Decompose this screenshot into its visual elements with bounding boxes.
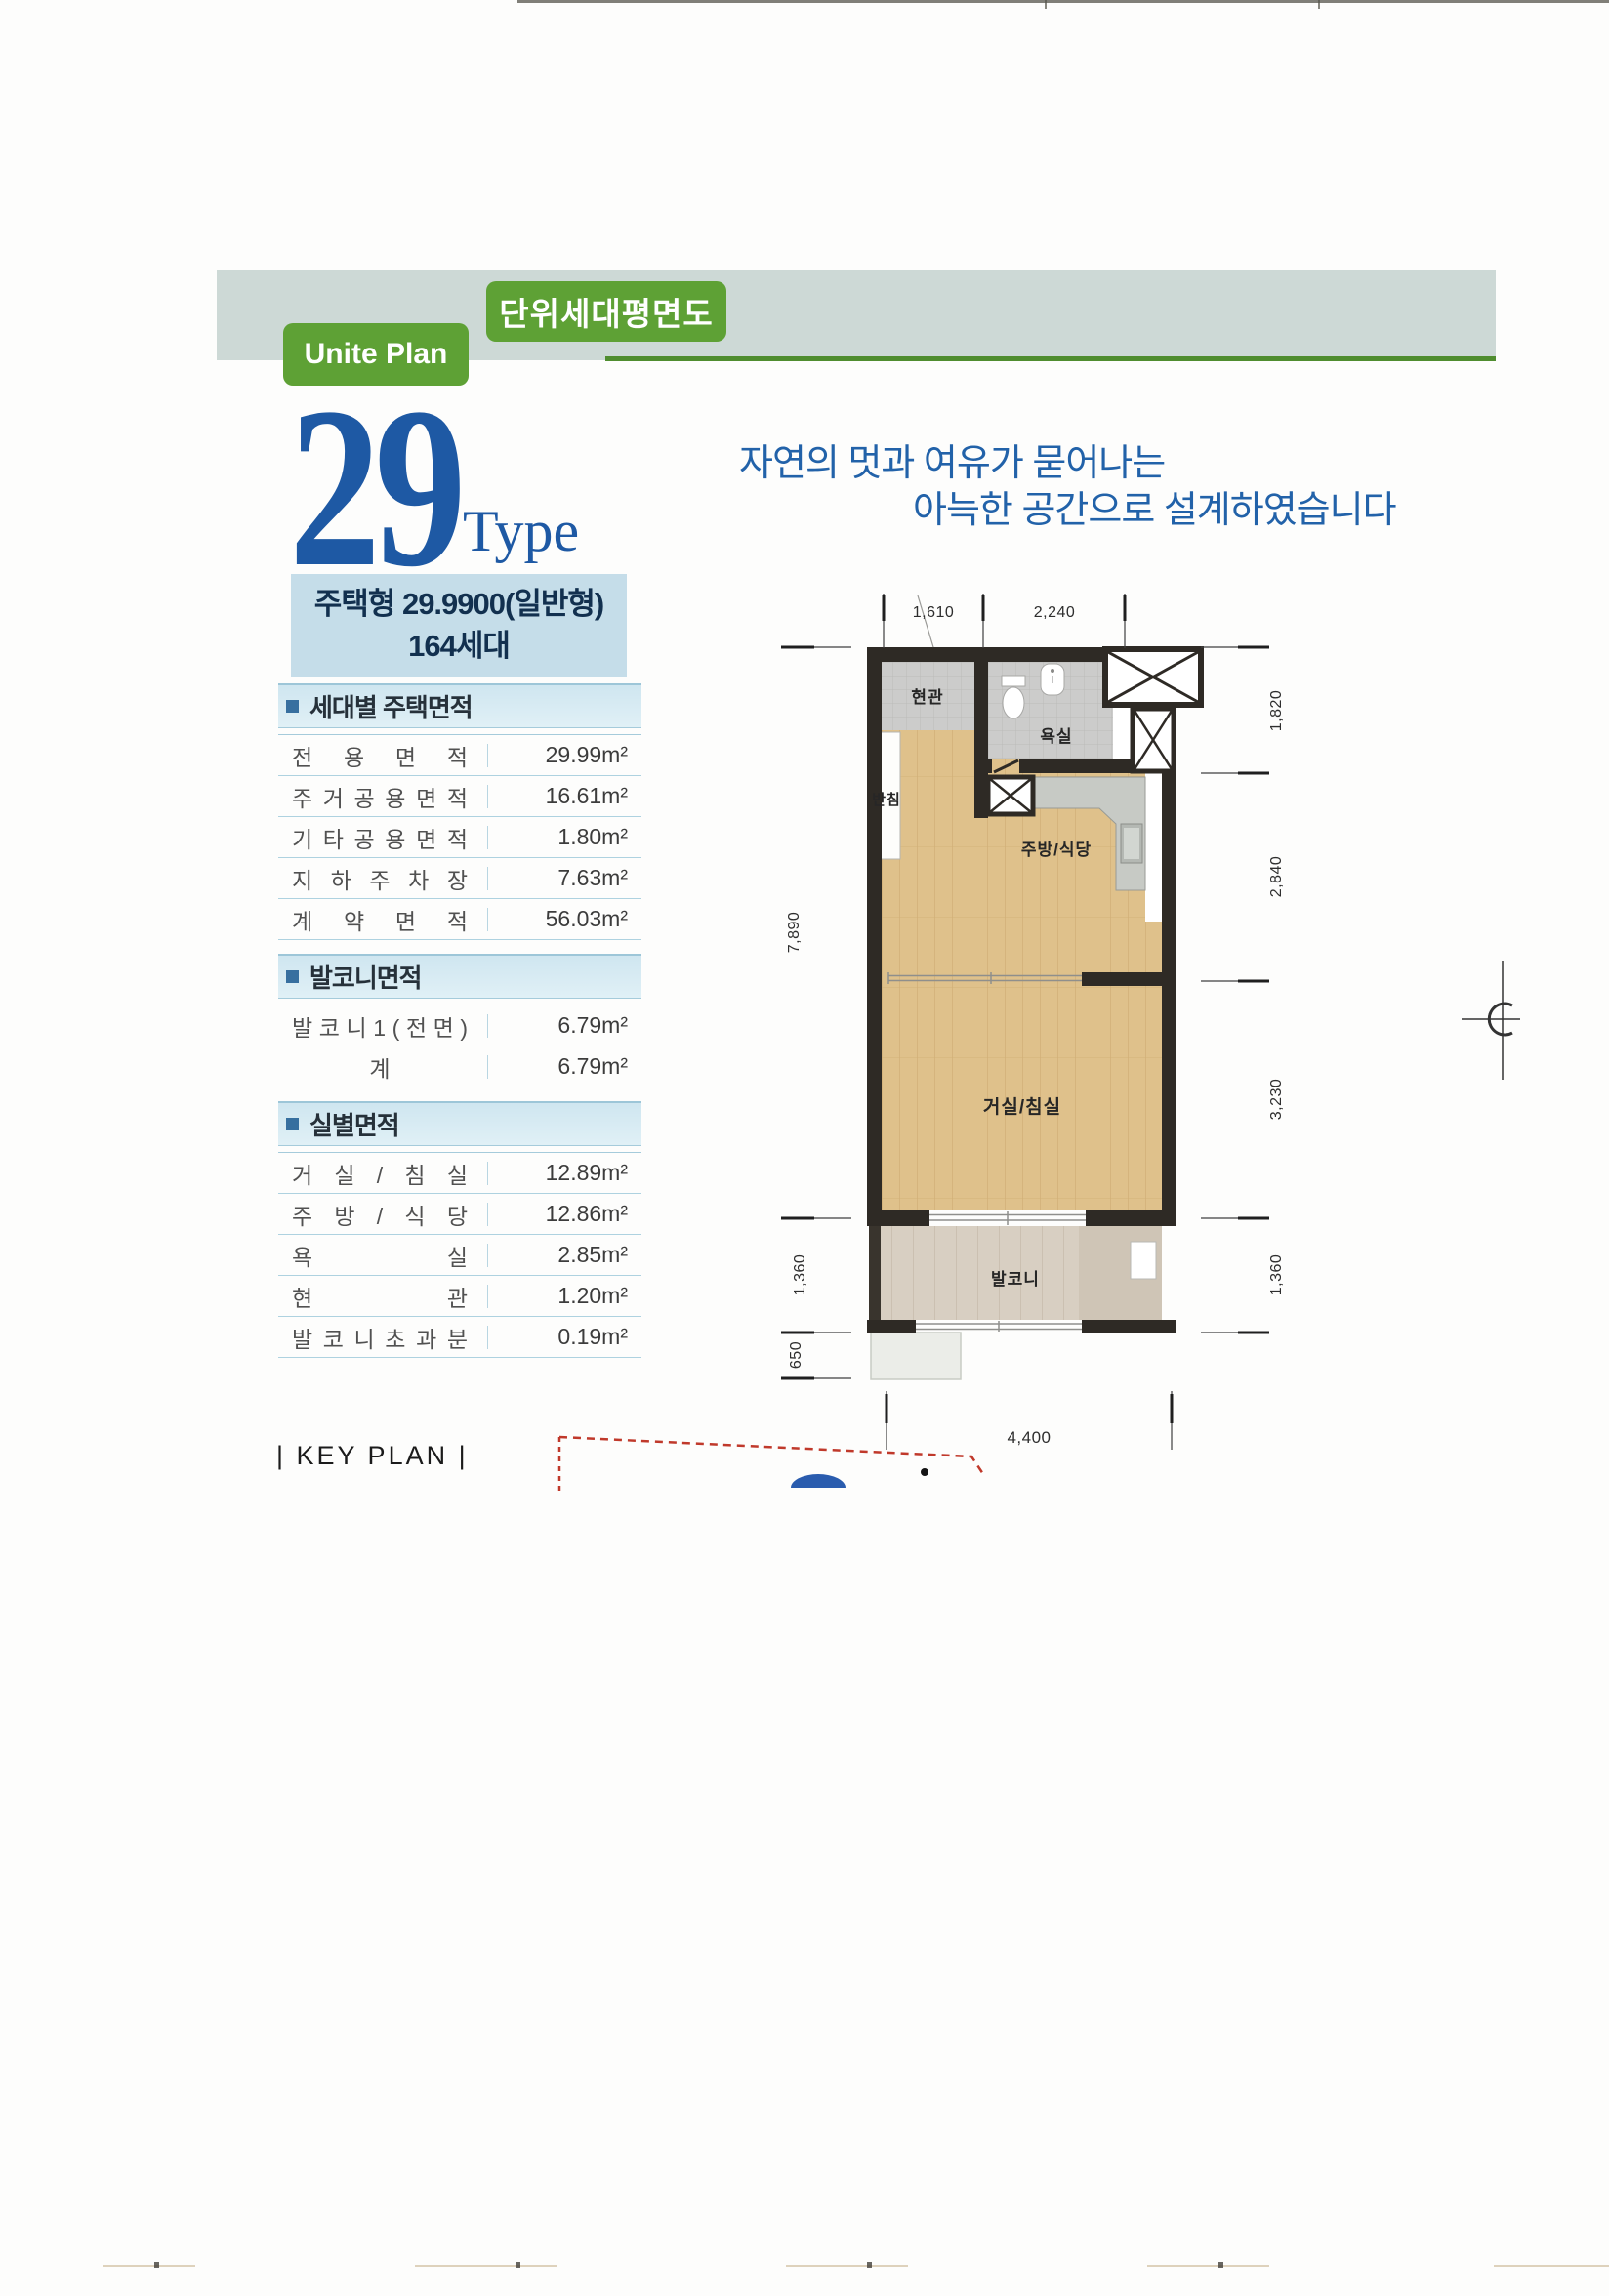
scan-artifact <box>1147 2265 1269 2267</box>
row-value: 2.85m² <box>488 1242 641 1268</box>
row-value: 7.63m² <box>488 865 641 891</box>
square-bullet-icon <box>286 700 299 713</box>
dim-left-3: 650 <box>788 1341 804 1369</box>
section-header-household-area: 세대별 주택면적 <box>278 683 641 728</box>
section-header-balcony-area: 발코니면적 <box>278 954 641 999</box>
scan-artifact-tick <box>1045 0 1047 9</box>
housing-type-box: 주택형 29.9900(일반형) 164세대 <box>291 574 627 677</box>
dim-top-2: 2,240 <box>1034 604 1076 621</box>
scan-artifact-top <box>517 0 1609 3</box>
unit-plan-tab: 단위세대평면도 <box>486 281 726 342</box>
centerline-symbol <box>1460 957 1538 1084</box>
row-label: 주 방 / 식 당 <box>278 1198 487 1231</box>
scan-artifact <box>1218 2262 1223 2268</box>
scan-artifact <box>154 2262 159 2268</box>
row-label: 지 하 주 차 장 <box>278 862 487 895</box>
key-plan-marker-blue <box>791 1474 846 1488</box>
shaft-box-right <box>1133 709 1174 771</box>
room-label-living: 거실/침실 <box>983 1096 1061 1118</box>
table-row: 욕 실2.85m² <box>278 1235 641 1276</box>
toilet-icon <box>1003 687 1024 718</box>
row-value: 0.19m² <box>488 1324 641 1350</box>
table-row: 발 코 니 초 과 분0.19m² <box>278 1317 641 1358</box>
balcony-area-table: 발 코 니 1 ( 전 면 )6.79m²계6.79m² <box>278 1004 641 1087</box>
scan-artifact <box>103 2265 195 2267</box>
room-label-bath: 욕실 <box>1040 727 1072 746</box>
room-label-entrance: 현관 <box>911 688 943 707</box>
floor-plan: 현관 욕실 반침 주방/식당 거실/침실 발코니 <box>742 566 1425 1464</box>
table-row: 지 하 주 차 장7.63m² <box>278 858 641 899</box>
table-row: 계 약 면 적56.03m² <box>278 899 641 940</box>
scan-artifact <box>1494 2265 1609 2267</box>
row-label: 발 코 니 초 과 분 <box>278 1321 487 1354</box>
headline-line2: 아늑한 공간으로 설계하였습니다 <box>913 488 1396 535</box>
area-tables: 세대별 주택면적 전 용 면 적29.99m²주 거 공 용 면 적16.61m… <box>278 683 641 1358</box>
scan-artifact <box>516 2262 520 2268</box>
table-row: 현 관1.20m² <box>278 1276 641 1317</box>
shaft-box-large <box>1105 649 1201 705</box>
room-label-closet: 반침 <box>872 792 901 808</box>
brochure-page: 단위세대평면도 Unite Plan 29 Type 자연의 멋과 여유가 묻어… <box>0 0 1609 2296</box>
row-value: 16.61m² <box>488 783 641 809</box>
row-value: 1.80m² <box>488 824 641 850</box>
lower-utility-box <box>871 1332 961 1379</box>
headline-line1: 자연의 멋과 여유가 묻어나는 <box>739 441 1165 488</box>
dim-top-1: 1,610 <box>913 604 955 621</box>
row-value: 6.79m² <box>488 1012 641 1039</box>
section-header-room-area: 실별면적 <box>278 1101 641 1146</box>
table-row: 거 실 / 침 실12.89m² <box>278 1153 641 1194</box>
row-label: 욕 실 <box>278 1239 487 1272</box>
row-label: 계 <box>278 1050 487 1084</box>
housing-type-line1: 주택형 29.9900(일반형) <box>314 586 603 624</box>
row-label: 기 타 공 용 면 적 <box>278 821 487 854</box>
table-row: 전 용 면 적29.99m² <box>278 735 641 776</box>
row-value: 1.20m² <box>488 1283 641 1309</box>
key-plan-label: | KEY PLAN | <box>276 1441 469 1471</box>
household-area-table: 전 용 면 적29.99m²주 거 공 용 면 적16.61m²기 타 공 용 … <box>278 734 641 940</box>
toilet-tank <box>1002 676 1025 686</box>
row-label: 발 코 니 1 ( 전 면 ) <box>278 1009 487 1043</box>
unit-plan-tab-label: 단위세대평면도 <box>499 288 714 335</box>
scan-artifact-tick <box>1318 0 1320 9</box>
scan-artifact <box>415 2265 557 2267</box>
dim-right-1: 1,820 <box>1268 690 1285 732</box>
header-underline <box>605 356 1496 361</box>
dim-right-2: 2,840 <box>1268 856 1285 898</box>
section-title: 실별면적 <box>309 1106 399 1142</box>
table-row: 계6.79m² <box>278 1046 641 1087</box>
row-label: 현 관 <box>278 1280 487 1313</box>
row-value: 12.89m² <box>488 1160 641 1186</box>
square-bullet-icon <box>286 1118 299 1130</box>
row-label: 전 용 면 적 <box>278 739 487 772</box>
row-value: 29.99m² <box>488 742 641 768</box>
square-bullet-icon <box>286 970 299 983</box>
entry-door-swing <box>918 595 933 647</box>
row-label: 주 거 공 용 면 적 <box>278 780 487 813</box>
table-row: 주 방 / 식 당12.86m² <box>278 1194 641 1235</box>
table-row: 기 타 공 용 면 적1.80m² <box>278 817 641 858</box>
row-value: 6.79m² <box>488 1053 641 1080</box>
room-area-table: 거 실 / 침 실12.89m²주 방 / 식 당12.86m²욕 실2.85m… <box>278 1152 641 1358</box>
housing-type-line2: 164세대 <box>408 628 510 666</box>
table-row: 발 코 니 1 ( 전 면 )6.79m² <box>278 1005 641 1046</box>
scan-artifact <box>867 2262 872 2268</box>
row-value: 12.86m² <box>488 1201 641 1227</box>
row-label: 거 실 / 침 실 <box>278 1157 487 1190</box>
dim-left-2: 1,360 <box>792 1254 808 1296</box>
key-plan-marker-dot <box>921 1468 928 1476</box>
dim-left-1: 7,890 <box>786 912 803 954</box>
type-suffix: Type <box>463 502 579 560</box>
room-label-balcony: 발코니 <box>991 1270 1040 1289</box>
type-number: 29 <box>289 398 460 577</box>
room-label-kitchen: 주방/식당 <box>1021 840 1092 859</box>
row-label: 계 약 면 적 <box>278 903 487 936</box>
scan-artifact <box>786 2265 908 2267</box>
row-value: 56.03m² <box>488 906 641 932</box>
dim-bottom: 4,400 <box>1007 1428 1051 1447</box>
section-title: 발코니면적 <box>309 959 422 995</box>
dim-right-3: 3,230 <box>1268 1079 1285 1121</box>
dim-right-4: 1,360 <box>1268 1254 1285 1296</box>
table-row: 주 거 공 용 면 적16.61m² <box>278 776 641 817</box>
section-title: 세대별 주택면적 <box>309 688 473 724</box>
shaft-box-kitchen <box>988 777 1033 814</box>
